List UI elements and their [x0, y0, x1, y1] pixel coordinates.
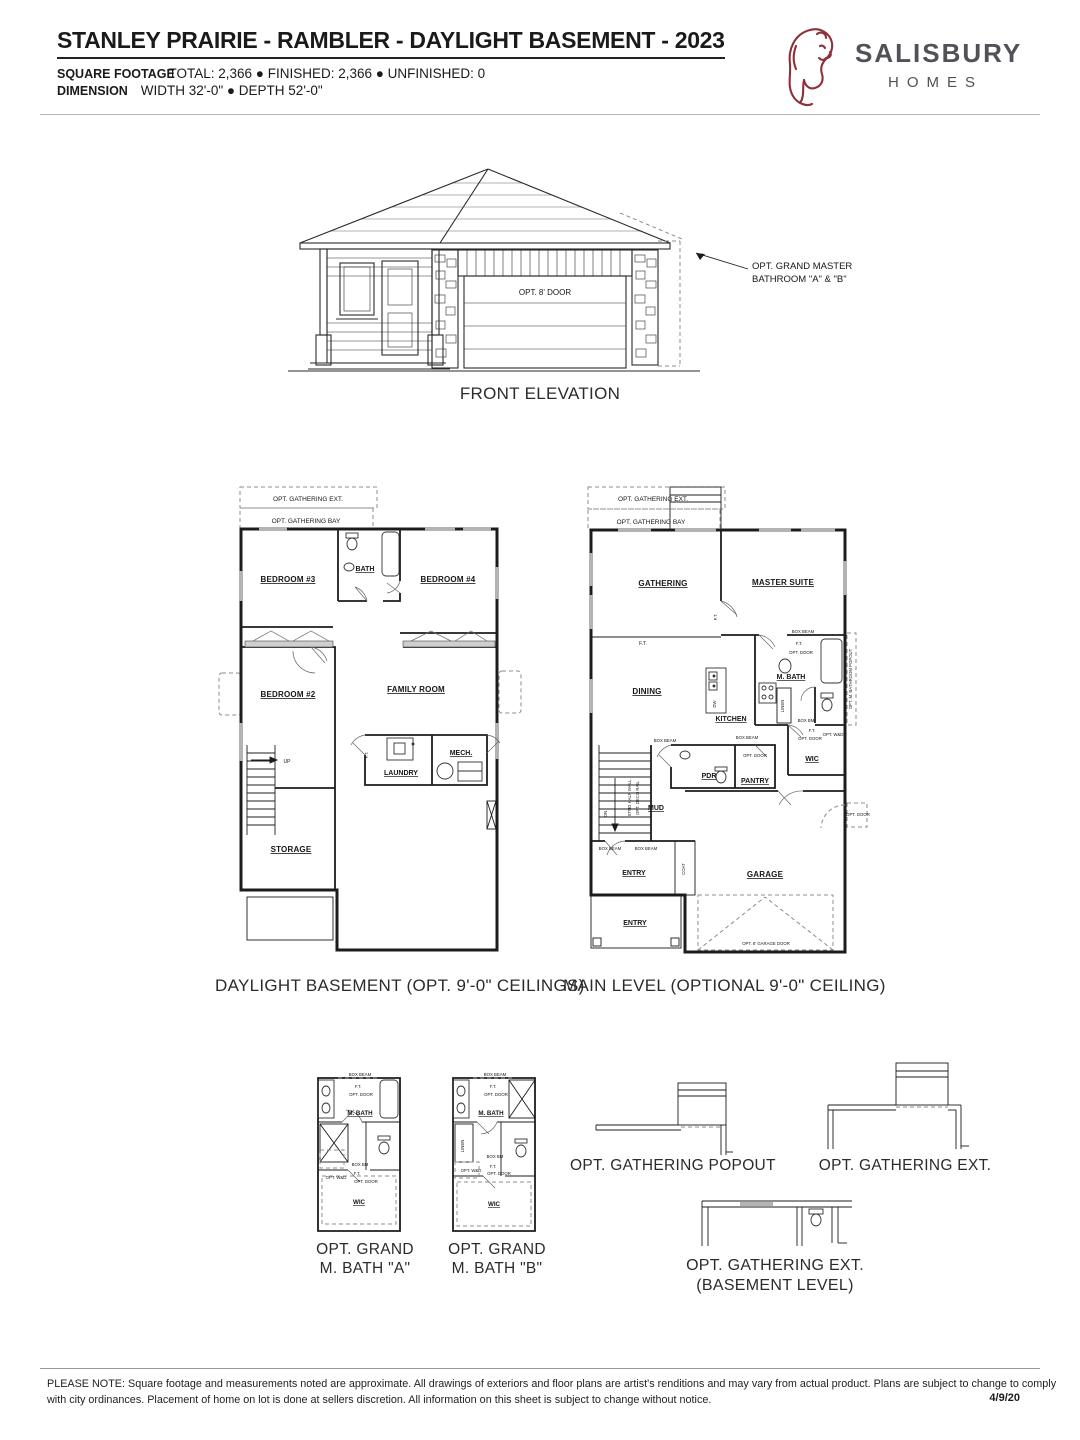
- footer-note-line1: PLEASE NOTE: Square footage and measurem…: [47, 1376, 1037, 1392]
- room-label-m-bath: M. BATH: [478, 1110, 504, 1117]
- label-box-beam: BOX BEAM: [736, 735, 759, 740]
- room-label-bedroom-4: BEDROOM #4: [421, 575, 476, 584]
- garage-door-label: OPT. 8' DOOR: [519, 288, 571, 297]
- basement-floor-plan: OPT. GATHERING EXT. OPT. GATHERING BAY: [215, 483, 525, 968]
- annotation-line2: BATHROOM "A" & "B": [752, 274, 847, 285]
- label-ft: F.T.: [490, 1084, 497, 1089]
- main-level-caption: MAIN LEVEL (OPTIONAL 9'-0" CEILING): [563, 976, 885, 996]
- label-box-bm: BOX BM: [352, 1162, 369, 1167]
- label-opt-gathering-bay: OPT. GATHERING BAY: [272, 518, 341, 525]
- room-label-family-room: FAMILY ROOM: [387, 685, 445, 694]
- square-footage-value: TOTAL: 2,366 ● FINISHED: 2,366 ● UNFINIS…: [169, 66, 486, 81]
- label-opt-wd: OPT. W&D: [823, 732, 844, 737]
- dimension-value: WIDTH 32'-0" ● DEPTH 52'-0": [141, 83, 323, 98]
- label-box-beam: BOX BEAM: [484, 1072, 507, 1077]
- window: [340, 263, 374, 315]
- label-ft: F.T.: [355, 1084, 362, 1089]
- room-label-laundry: LAUNDRY: [384, 770, 418, 777]
- label-dw: DW: [712, 699, 717, 707]
- label-opt-wd: OPT. W&D: [461, 1168, 482, 1173]
- footer-divider: [40, 1368, 1040, 1369]
- label-box-bm: BOX BM: [798, 718, 815, 723]
- room-label-entry: ENTRY: [622, 870, 646, 877]
- opt-gathering-ext-basement-diagram: [695, 1196, 855, 1254]
- label-linen: LINEN: [460, 1140, 465, 1153]
- elevation-caption: FRONT ELEVATION: [440, 384, 640, 404]
- label-box-bm: BOX BM: [487, 1154, 504, 1159]
- room-label-bedroom-2: BEDROOM #2: [261, 690, 316, 699]
- label-ft: F.T.: [796, 641, 803, 646]
- basement-window-marker: [487, 801, 496, 829]
- label-box-beam: BOX BEAM: [349, 1072, 372, 1077]
- room-label-storage: STORAGE: [271, 845, 312, 854]
- basement-patio: [247, 897, 333, 940]
- room-label-m-bath: M. BATH: [777, 674, 806, 681]
- opt-gathering-ext-caption: OPT. GATHERING EXT.: [815, 1157, 995, 1175]
- label-opt-door: OPT. DOOR: [484, 1092, 508, 1097]
- dimension-label: DIMENSION: [57, 84, 137, 98]
- opt-gathering-popout-diagram: [593, 1078, 743, 1160]
- lion-icon: [780, 24, 848, 108]
- label-box-beam: BOX BEAM: [635, 846, 658, 851]
- label-box-beam: BOX BEAM: [654, 738, 677, 743]
- room-label-bath: BATH: [356, 566, 375, 573]
- label-ft: F.T.: [490, 1164, 497, 1169]
- label-opt-gathering-ext: OPT. GATHERING EXT.: [273, 496, 343, 503]
- label-opt-mbath-popout: OPT. M. BATHROOM POPOUT: [848, 648, 853, 709]
- opt-gathering-ext-basement-caption: OPT. GATHERING EXT. (BASEMENT LEVEL): [680, 1256, 870, 1296]
- opt-gathering-popout-caption: OPT. GATHERING POPOUT: [570, 1157, 765, 1175]
- label-dn: DN: [603, 811, 608, 817]
- page-title: STANLEY PRAIRIE - RAMBLER - DAYLIGHT BAS…: [57, 27, 725, 59]
- opt-grand-mbath-a-caption: OPT. GRAND M. BATH "A": [301, 1240, 429, 1278]
- opt-grand-mbath-a-diagram: BOX BEAM F.T. OPT. DOOR M. BATH BOX BM O…: [308, 1066, 420, 1238]
- room-label-entry-porch: ENTRY: [623, 920, 647, 927]
- square-footage-label: SQUARE FOOTAGE: [57, 67, 165, 81]
- main-exterior-walls: [591, 530, 845, 952]
- label-opt-door: OPT. DOOR: [743, 753, 767, 758]
- room-label-dining: DINING: [632, 687, 661, 696]
- stone-piers: [432, 250, 658, 368]
- room-label-wic: WIC: [353, 1199, 366, 1206]
- opt-gathering-ext-diagram: [823, 1061, 973, 1159]
- label-ft: F.T.: [809, 728, 816, 733]
- roof: [300, 169, 670, 249]
- label-ft: F.T.: [364, 752, 369, 759]
- opt-grand-mbath-b-diagram: BOX BEAM F.T. OPT. DOOR M. BATH LINEN BO…: [443, 1066, 555, 1238]
- opt-grand-mbath-b-caption: OPT. GRAND M. BATH "B": [433, 1240, 561, 1278]
- room-label-master-suite: MASTER SUITE: [752, 578, 814, 587]
- label-opt-door: OPT. DOOR: [354, 1179, 378, 1184]
- label-box-beam: BOX BEAM: [792, 629, 815, 634]
- room-label-pantry: PANTRY: [741, 778, 769, 785]
- logo-brand: SALISBURY: [855, 38, 1022, 69]
- label-opt-gathering-ext: OPT. GATHERING EXT.: [618, 496, 688, 503]
- logo-brand-suffix: HOMES: [888, 74, 983, 91]
- main-windows: [591, 530, 845, 713]
- label-opt-wd: OPT. W&D: [326, 1175, 347, 1180]
- room-label-m-bath: M. BATH: [347, 1110, 373, 1117]
- floor-plan-sheet: STANLEY PRAIRIE - RAMBLER - DAYLIGHT BAS…: [0, 0, 1080, 1440]
- porch: [308, 249, 450, 369]
- basement-option-boxes: [219, 487, 521, 715]
- header-divider: [40, 114, 1040, 115]
- room-label-wic: WIC: [805, 756, 819, 763]
- annotation-grand-master: OPT. GRAND MASTER BATHROOM "A" & "B": [696, 253, 852, 285]
- label-opt-gathering-bay: OPT. GATHERING BAY: [617, 519, 686, 526]
- annotation-line1: OPT. GRAND MASTER: [752, 261, 852, 272]
- label-opt-door: OPT. DOOR: [487, 1171, 511, 1176]
- footer-note-line2: with city ordinances. Placement of home …: [47, 1392, 1037, 1408]
- basement-doors: [293, 581, 500, 755]
- header: STANLEY PRAIRIE - RAMBLER - DAYLIGHT BAS…: [57, 27, 725, 98]
- room-label-wic: WIC: [488, 1201, 501, 1208]
- label-box-beam: BOX BEAM: [599, 846, 622, 851]
- label-linen: LINEN: [780, 700, 785, 713]
- label-opt-door: OPT. DOOR: [349, 1092, 373, 1097]
- label-coat: COAT: [681, 863, 686, 875]
- room-label-garage: GARAGE: [747, 870, 784, 879]
- room-label-kitchen: KITCHEN: [715, 716, 746, 723]
- main-stairs: [599, 745, 651, 841]
- room-label-mech: MECH.: [450, 750, 473, 757]
- label-opt-garage-door: OPT. 8' GARAGE DOOR: [742, 941, 790, 946]
- room-label-gathering: GATHERING: [638, 579, 687, 588]
- label-opt-door: OPT. DOOR: [789, 650, 813, 655]
- label-stair-note-1: STND HALF WALL: [627, 779, 632, 816]
- footer-date: 4/9/20: [989, 1392, 1020, 1404]
- label-stair-note-2: OPT. DECO RAIL: [635, 780, 640, 815]
- garage-front: OPT. 8' DOOR: [458, 250, 632, 368]
- basement-labels: BEDROOM #3 BATH BEDROOM #4 BEDROOM #2 FA…: [261, 566, 476, 854]
- basement-stairs: [247, 745, 277, 835]
- label-up: UP: [284, 759, 292, 765]
- room-label-bedroom-3: BEDROOM #3: [261, 575, 316, 584]
- label-ft: F.T.: [713, 614, 718, 621]
- front-elevation-drawing: OPT. 8' DOOR OPT. GRAND MASTER BATHROOM …: [280, 163, 880, 378]
- label-ft: F.T.: [639, 641, 647, 647]
- label-opt-door: OPT. DOOR: [846, 812, 870, 817]
- label-ft: F.T.: [354, 1171, 361, 1176]
- room-label-mud: MUD: [648, 805, 664, 812]
- basement-exterior-walls: [241, 529, 497, 950]
- main-level-floor-plan: OPT. GATHERING EXT. OPT. GATHERING BAY: [563, 483, 885, 968]
- basement-caption: DAYLIGHT BASEMENT (OPT. 9'-0" CEILINGS): [215, 976, 525, 996]
- label-opt-door: OPT. DOOR: [798, 736, 822, 741]
- room-label-pdr: PDR: [702, 773, 717, 780]
